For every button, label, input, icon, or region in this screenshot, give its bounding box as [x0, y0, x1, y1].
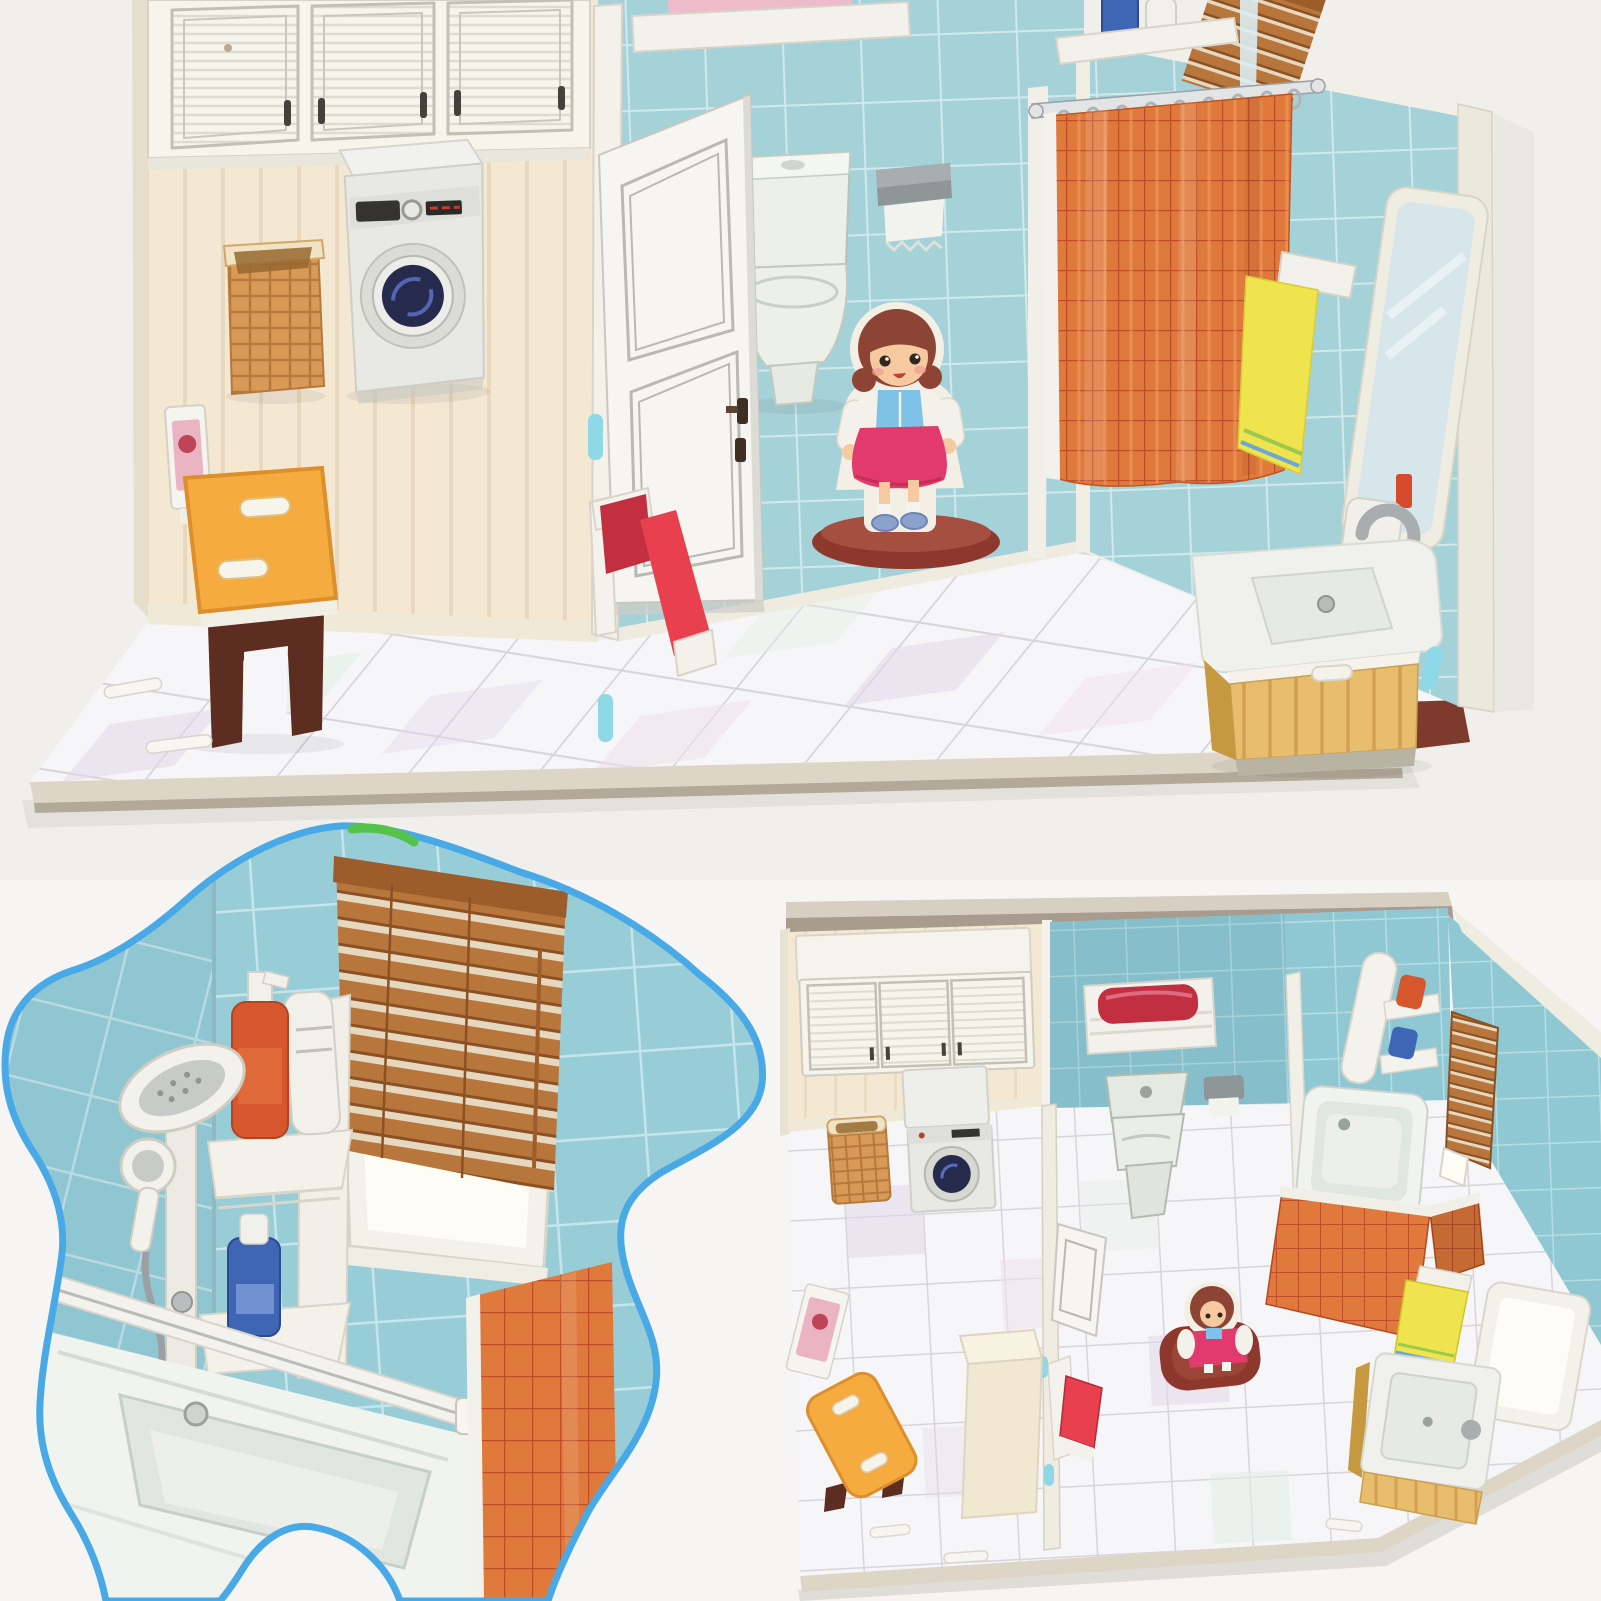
scene-main-view [0, 0, 1601, 880]
cabinet-door [448, 0, 572, 134]
wall-sticker [1396, 474, 1412, 508]
puzzle-tab [588, 414, 603, 460]
paper-piece [944, 1550, 989, 1563]
vanity-handle [1312, 665, 1353, 682]
storage-cabinet [960, 1330, 1042, 1518]
venetian-blinds [333, 856, 568, 1192]
wall-cabinets [796, 928, 1035, 1076]
wall-edge-shadow [1494, 114, 1534, 712]
cabinet-door [951, 978, 1026, 1064]
red-towel-roll [1097, 983, 1199, 1024]
cabinet-knot [224, 44, 232, 52]
cabinet-door [879, 981, 950, 1067]
drain [1318, 596, 1334, 612]
stool-handle-slot [217, 558, 268, 579]
laundry-basket [224, 240, 326, 404]
open-door [1052, 1224, 1106, 1336]
valve [172, 1292, 192, 1312]
toilet-paper-holder [1203, 1075, 1245, 1117]
cabinet-door [172, 6, 298, 148]
wall-cabinets [148, 0, 590, 170]
towel-shelf [1084, 978, 1216, 1054]
washing-machine [902, 1066, 995, 1212]
scene-detail-callout [0, 795, 790, 1601]
cabinet-door [807, 983, 878, 1069]
puzzle-tab [598, 694, 613, 742]
callout-interior [0, 795, 790, 1601]
overflow-drain [185, 1403, 207, 1425]
glass-edge [1240, 0, 1258, 92]
shower-curtain-edge [466, 1262, 618, 1601]
stool-handle-slot [239, 496, 290, 517]
machine-display [356, 200, 401, 222]
washing-machine [338, 139, 491, 406]
puzzle-tab [1044, 1464, 1054, 1486]
cabinet-door [312, 3, 434, 140]
scene-overhead-view [780, 860, 1601, 1601]
machine-knob [403, 201, 422, 220]
bottle-white-tube [283, 990, 341, 1135]
laundry-basket [827, 1116, 891, 1204]
photo-collage [0, 0, 1601, 1601]
flush-button [781, 160, 805, 170]
